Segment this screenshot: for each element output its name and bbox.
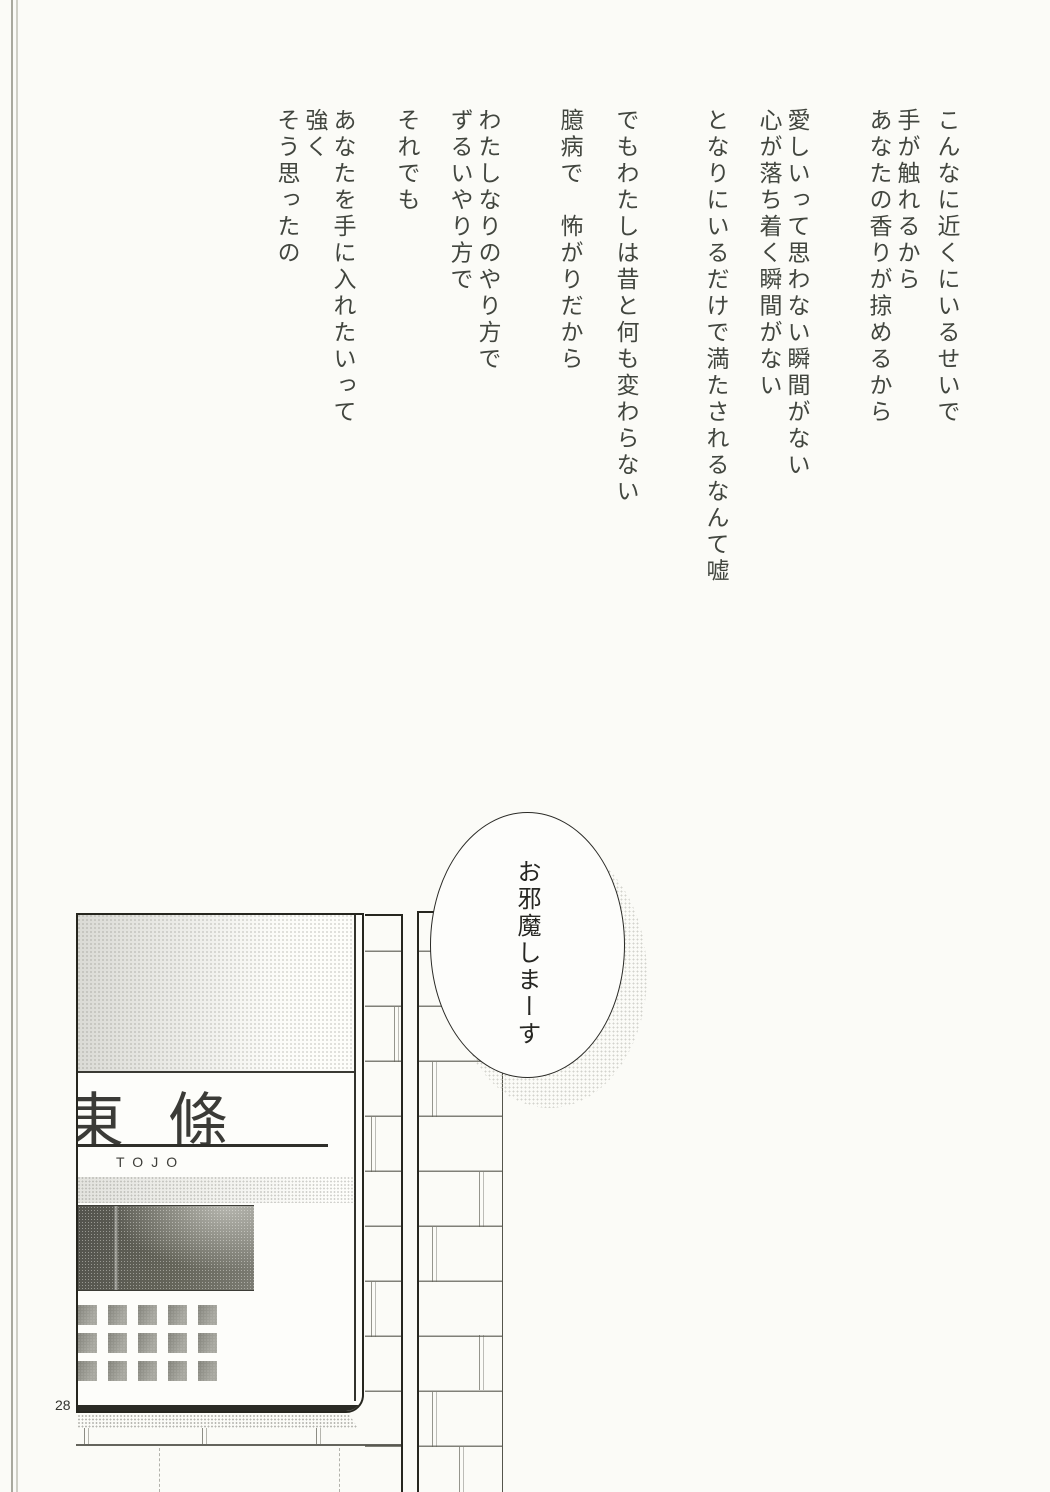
panel-side-line bbox=[354, 915, 356, 1401]
brick-joint bbox=[432, 1392, 437, 1447]
poem-line: 愛しいって思わない瞬間がない bbox=[782, 108, 810, 758]
brick-joint bbox=[432, 1227, 437, 1282]
brick-joint bbox=[479, 1335, 484, 1390]
brick-wall-below-panel bbox=[76, 1428, 401, 1492]
intercom-keypad bbox=[78, 1305, 217, 1381]
nameplate-underline bbox=[78, 1144, 328, 1147]
keypad-button bbox=[138, 1361, 157, 1381]
poem-line: あなたを手に入れたいって bbox=[328, 108, 356, 758]
brick-joint bbox=[371, 1282, 376, 1337]
poem-line: ずるいやり方で bbox=[445, 108, 473, 758]
brick-joint bbox=[339, 1448, 343, 1492]
brick-joint bbox=[159, 1448, 163, 1492]
nameplate-romaji: TOJO bbox=[116, 1154, 185, 1170]
panel-bottom-edge bbox=[78, 1405, 362, 1411]
keypad-button bbox=[78, 1361, 97, 1381]
keypad-button bbox=[78, 1333, 97, 1353]
mortar-line bbox=[76, 1444, 401, 1446]
speech-bubble-text: お邪魔しまーす bbox=[510, 813, 545, 1077]
nameplate-kanji: 東條 bbox=[76, 1073, 272, 1137]
keypad-button bbox=[198, 1333, 217, 1353]
poem-line: 強く bbox=[300, 108, 328, 758]
page-number: 28 bbox=[55, 1397, 71, 1413]
brick-joint bbox=[202, 1428, 207, 1444]
poem-line: こんなに近くにいるせいで bbox=[932, 108, 960, 758]
manga-page: { "page": { "number": "28", "background"… bbox=[0, 0, 1050, 1492]
keypad-button bbox=[168, 1361, 187, 1381]
halftone-band bbox=[78, 1177, 355, 1203]
intercom-panel: 東條 TOJO bbox=[76, 913, 364, 1413]
poem-line: となりにいるだけで満たされるなんて嘘 bbox=[701, 108, 729, 758]
page-edge-line-inner bbox=[16, 0, 18, 1492]
brick-joint bbox=[459, 1447, 464, 1492]
brick-joint bbox=[394, 1007, 399, 1062]
brick-joint bbox=[316, 1428, 321, 1444]
poem-line: わたしなりのやり方で bbox=[473, 108, 501, 758]
poem-line: あなたの香りが掠めるから bbox=[864, 108, 892, 758]
poem-line: そう思ったの bbox=[272, 108, 300, 758]
brick-wall-strip bbox=[365, 914, 403, 1492]
brick-joint bbox=[371, 1117, 376, 1172]
keypad-button bbox=[168, 1333, 187, 1353]
keypad-button bbox=[198, 1305, 217, 1325]
poem-line: でもわたしは昔と何も変わらない bbox=[611, 108, 639, 758]
poem-line: 臆病で 怖がりだから bbox=[555, 108, 583, 758]
keypad-button bbox=[138, 1333, 157, 1353]
brick-joint bbox=[479, 1172, 484, 1227]
keypad-button bbox=[138, 1305, 157, 1325]
intercom-screen bbox=[78, 1205, 254, 1291]
page-edge-line-outer bbox=[11, 0, 13, 1492]
keypad-button bbox=[108, 1361, 127, 1381]
panel-top-shade bbox=[78, 915, 355, 1073]
panel-bottom-strip bbox=[78, 1415, 358, 1428]
poem-text: こんなに近くにいるせいで 手が触れるから あなたの香りが掠めるから 愛しいって思… bbox=[272, 108, 960, 758]
speech-bubble: お邪魔しまーす bbox=[430, 812, 625, 1078]
keypad-button bbox=[108, 1305, 127, 1325]
keypad-button bbox=[168, 1305, 187, 1325]
brick-joint bbox=[432, 1062, 437, 1117]
keypad-button bbox=[198, 1361, 217, 1381]
poem-line: それでも bbox=[392, 108, 420, 758]
brick-joint bbox=[84, 1428, 89, 1444]
poem-line: 心が落ち着く瞬間がない bbox=[754, 108, 782, 758]
poem-line: 手が触れるから bbox=[892, 108, 920, 758]
keypad-button bbox=[108, 1333, 127, 1353]
keypad-button bbox=[78, 1305, 97, 1325]
